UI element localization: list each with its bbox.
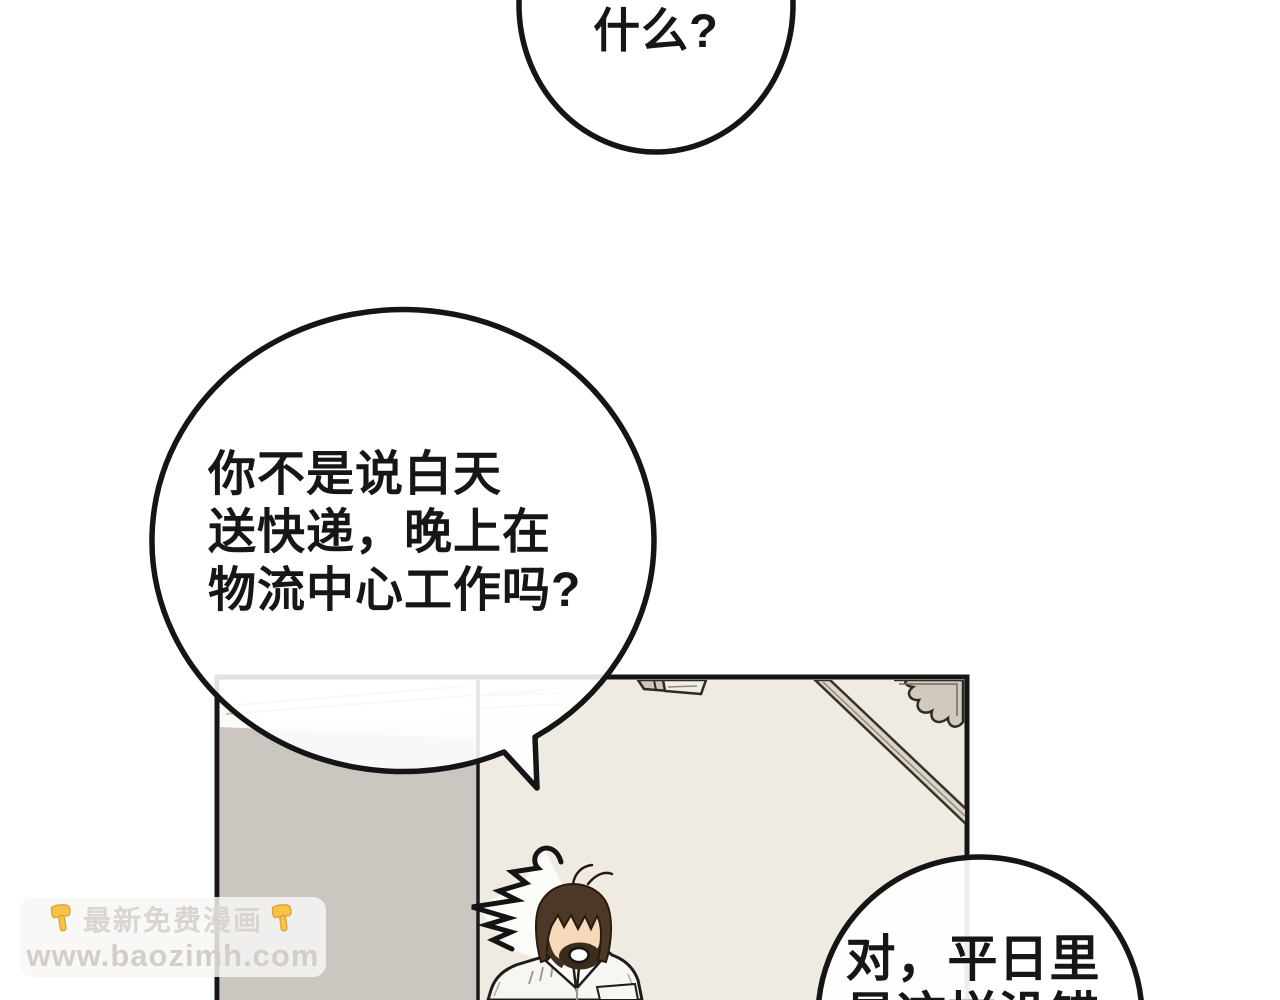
bubble-bottom-text: 对，平日里 是这样没错 (808, 931, 1138, 1000)
bubble-middle-line3: 物流中心工作吗? (208, 562, 581, 620)
bubble-middle-line2: 送快递，晚上在 (208, 504, 581, 562)
bubble-middle-text: 你不是说白天 送快递，晚上在 物流中心工作吗? (208, 446, 581, 620)
comic-page: 最新免费漫画 www.baozimh.com 什么? 你不是说白天 送快递，晚上… (0, 0, 1280, 1000)
bubble-top-text: 什么? (519, 2, 793, 60)
speech-bubbles (0, 0, 1280, 1000)
bubble-bottom-line1: 对，平日里 (808, 931, 1138, 988)
bubble-middle-line1: 你不是说白天 (208, 446, 581, 504)
bubble-bottom-line2: 是这样没错 (808, 988, 1138, 1000)
